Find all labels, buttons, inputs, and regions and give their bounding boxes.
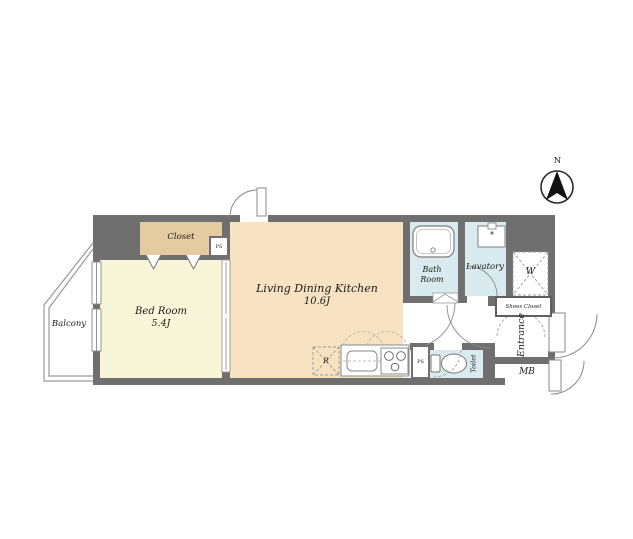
refrigerator-label: R xyxy=(313,347,339,375)
compass-icon xyxy=(541,171,573,203)
wall-segment xyxy=(222,372,230,384)
balcony-label: Balcony xyxy=(44,317,94,331)
balcony-outline xyxy=(44,243,93,381)
wall-segment xyxy=(403,296,433,303)
pipe-space-closet-label: PS xyxy=(216,244,223,250)
bath-room-label: Bath Room xyxy=(412,263,452,287)
washer-space-label: W xyxy=(513,263,548,283)
meter-box-label: MB xyxy=(505,363,549,383)
floor-plan: PS PS Shoes Closet Balcony Closet Bed Ro… xyxy=(0,0,633,539)
bedroom-name: Bed Room xyxy=(135,306,187,319)
hall-area xyxy=(410,303,488,343)
top-door xyxy=(230,188,266,217)
meter-box-door xyxy=(549,360,584,394)
lavatory-area xyxy=(465,222,506,296)
entrance-door xyxy=(549,313,597,358)
compass-north-label: N xyxy=(550,155,565,167)
wall-segment xyxy=(506,252,513,296)
lavatory-label: Lavatory xyxy=(463,261,507,274)
wall-segment xyxy=(458,296,467,303)
wall-segment xyxy=(458,222,465,296)
wall-segment xyxy=(93,304,100,309)
ldk-label: Living Dining Kitchen 10.6J xyxy=(239,280,395,310)
bedroom-label: Bed Room 5.4J xyxy=(113,303,209,333)
pipe-space-kitchen-box: PS xyxy=(411,345,430,379)
pipe-space-kitchen-label: PS xyxy=(417,359,425,366)
bedroom-size: 5.4J xyxy=(152,318,171,330)
ldk-size: 10.6J xyxy=(304,296,330,309)
ldk-name: Living Dining Kitchen xyxy=(256,282,378,296)
wall-segment xyxy=(403,222,410,303)
wall-segment xyxy=(488,296,495,306)
wall-segment xyxy=(95,215,140,260)
sliding-door xyxy=(222,260,230,372)
wall-segment xyxy=(93,378,505,385)
wall-segment xyxy=(548,252,555,297)
entrance-label: Entrance xyxy=(497,309,547,361)
wall-segment xyxy=(93,215,100,262)
wall-segment xyxy=(506,215,555,252)
wall-segment xyxy=(268,215,508,222)
closet-label: Closet xyxy=(146,230,216,244)
toilet-label: Toilet xyxy=(461,351,488,377)
